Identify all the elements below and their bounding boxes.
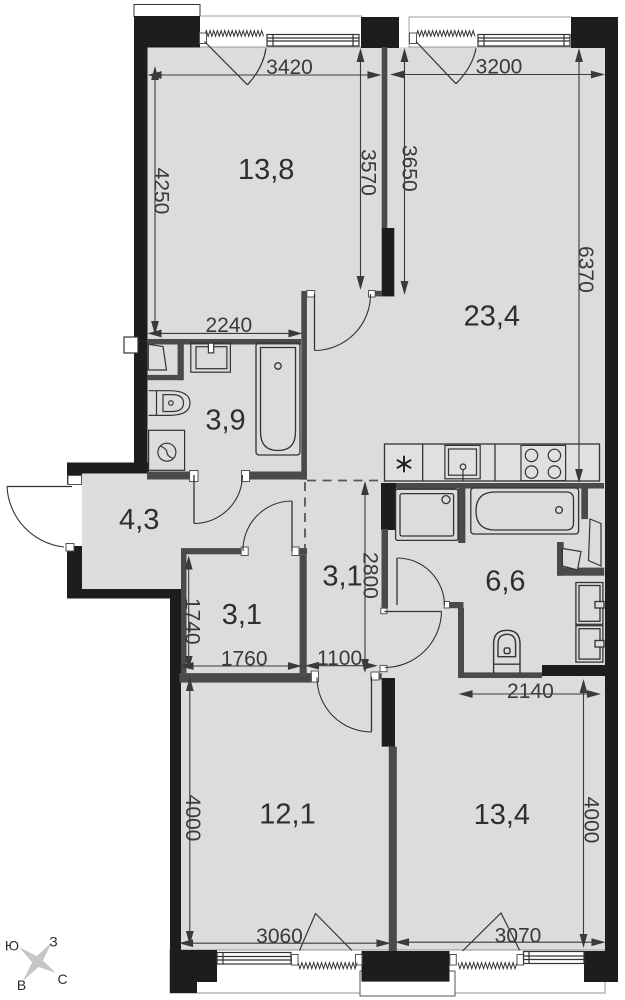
svg-text:6,6: 6,6 (485, 566, 525, 598)
svg-text:В: В (17, 977, 26, 993)
svg-text:3,1: 3,1 (222, 599, 262, 631)
svg-text:2240: 2240 (205, 314, 252, 337)
svg-text:3570: 3570 (357, 149, 380, 196)
svg-text:3,9: 3,9 (205, 405, 245, 437)
svg-text:3650: 3650 (398, 145, 421, 192)
svg-text:3070: 3070 (495, 925, 542, 948)
svg-text:С: С (57, 971, 67, 987)
svg-text:1100: 1100 (317, 647, 362, 670)
svg-text:1760: 1760 (221, 648, 268, 671)
svg-text:4250: 4250 (150, 168, 173, 215)
svg-text:6370: 6370 (574, 246, 597, 293)
svg-text:3420: 3420 (266, 56, 313, 79)
svg-text:13,4: 13,4 (474, 799, 530, 831)
svg-text:4000: 4000 (580, 797, 603, 844)
svg-text:2140: 2140 (507, 680, 554, 703)
svg-text:23,4: 23,4 (464, 301, 520, 333)
svg-text:3060: 3060 (256, 925, 303, 948)
svg-text:З: З (49, 934, 57, 950)
svg-text:3200: 3200 (476, 55, 523, 78)
svg-text:3,1: 3,1 (322, 561, 362, 593)
svg-text:1740: 1740 (181, 598, 204, 645)
svg-text:12,1: 12,1 (259, 799, 315, 831)
svg-text:4000: 4000 (181, 795, 204, 842)
svg-text:Ю: Ю (5, 938, 19, 954)
svg-text:4,3: 4,3 (119, 504, 159, 536)
svg-text:13,8: 13,8 (238, 154, 294, 186)
